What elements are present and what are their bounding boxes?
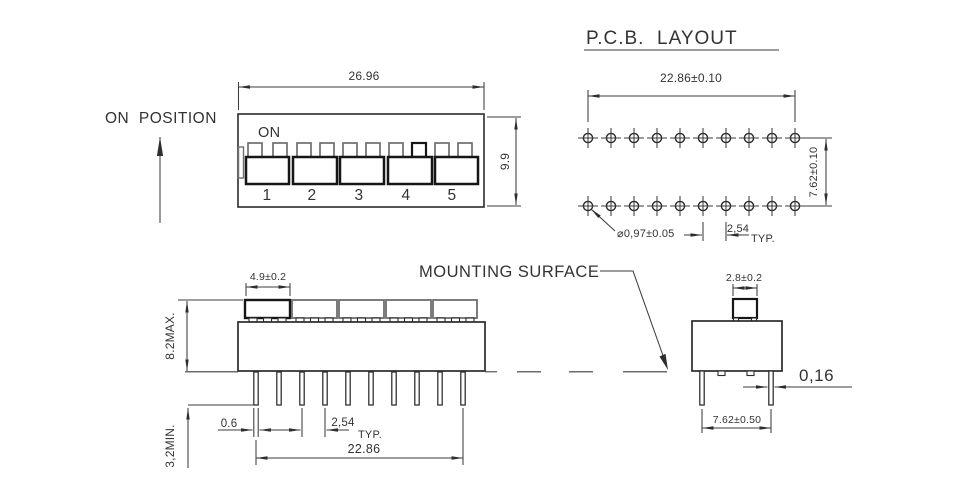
slider-cap (292, 300, 337, 318)
pin (392, 372, 396, 405)
pcb-hole (670, 128, 690, 148)
seated-height-value: 8.2MAX. (163, 312, 177, 359)
side-view: 4.9±0.2 8.2MAX. 3,2MIN. (163, 271, 667, 468)
switch-number: 5 (447, 187, 456, 204)
pin (415, 372, 419, 405)
pin (700, 371, 704, 405)
mounting-surface-label: MOUNTING SURFACE (419, 263, 599, 281)
pin-width-value: 0.6 (221, 418, 238, 430)
pcb-layout-title: P.C.B. LAYOUT (586, 28, 738, 49)
pcb-hole (762, 128, 782, 148)
pin-row-spacing-value: 7.62±0.50 (713, 414, 761, 426)
side-notch (239, 147, 244, 178)
top-view: ON POSITION 26.96 ON 1 2 3 4 5 9.9 (105, 69, 521, 223)
hole-span-value: 22.86±0.10 (660, 71, 722, 85)
dim-overall-width: 26.96 (239, 69, 485, 110)
pin (300, 372, 304, 405)
pin-length-value: 3,2MIN. (163, 424, 177, 467)
slider-cap (433, 300, 477, 318)
pin (438, 372, 442, 405)
contact-window (273, 143, 287, 157)
slider-cap (339, 300, 384, 318)
hole-pitch-value: 2,54 (727, 223, 749, 235)
pcb-hole-pattern (578, 128, 805, 216)
contact-window (343, 143, 357, 157)
slider-cap-end (733, 299, 757, 318)
contact-window (458, 143, 472, 157)
dip-switch-drawing: ON POSITION 26.96 ON 1 2 3 4 5 9.9 P.C. (0, 0, 960, 488)
pin-span-value: 22.86 (348, 442, 381, 456)
pcb-layout-view: P.C.B. LAYOUT 22.86±0.10 7.62±0.10 ⌀0,97… (578, 28, 832, 245)
contact-window (389, 143, 403, 157)
switch-slider (435, 157, 478, 184)
slider-cap (245, 300, 290, 318)
pin (769, 371, 773, 405)
pin (254, 372, 258, 405)
dim-overall-depth: 9.9 (487, 117, 521, 206)
dim-pin-pitch: 2,54 TYP. (261, 408, 382, 441)
dim-end-actuator-width: 2.8±0.2 (726, 272, 762, 296)
dim-pin-width: 0.6 (218, 408, 298, 437)
row-spacing-value: 7.62±0.10 (808, 147, 820, 198)
pcb-hole (647, 196, 667, 216)
dim-actuator-width: 4.9±0.2 (246, 271, 290, 296)
pcb-hole (739, 128, 759, 148)
pcb-hole (716, 128, 736, 148)
pcb-hole (601, 128, 621, 148)
pin (369, 372, 373, 405)
pcb-hole (624, 196, 644, 216)
actuator-width-value: 4.9±0.2 (250, 271, 286, 283)
slider-cap (386, 300, 431, 318)
dim-hole-pitch: 2,54 TYP. (684, 222, 775, 245)
pcb-hole (693, 128, 713, 148)
switch-slider (293, 157, 337, 184)
on-marking: ON (258, 125, 281, 141)
on-position-label: ON POSITION (105, 110, 217, 127)
dim-pin-length: 3,2MIN. (163, 408, 188, 468)
bottom-standoff (718, 371, 725, 376)
contact-window (412, 143, 426, 157)
pin-thickness-value: 0,16 (799, 366, 834, 385)
pcb-hole (601, 196, 621, 216)
switch-slider (340, 157, 384, 184)
pcb-hole (647, 128, 667, 148)
pcb-hole (693, 196, 713, 216)
pin-pitch-value: 2,54 (331, 417, 355, 429)
actuator-width-value: 2.8±0.2 (726, 272, 762, 284)
dim-row-spacing: 7.62±0.10 (801, 138, 832, 206)
through-hole-pins (254, 372, 465, 405)
pin (461, 372, 465, 405)
pitch-qualifier: TYP. (358, 429, 382, 441)
contact-window (435, 143, 449, 157)
contact-window (297, 143, 311, 157)
pin (323, 372, 327, 405)
technical-drawing-page: ON POSITION 26.96 ON 1 2 3 4 5 9.9 P.C. (0, 0, 960, 488)
switch-number: 2 (307, 187, 316, 204)
pcb-hole (624, 128, 644, 148)
switch-number: 1 (262, 187, 271, 204)
leader-line (600, 271, 666, 364)
switch-body-end (692, 321, 782, 371)
bottom-standoff (747, 371, 754, 376)
switch-number: 3 (354, 187, 363, 204)
switch-number: 4 (401, 187, 410, 204)
hole-diameter-callout: ⌀0,97±0.05 (591, 209, 674, 240)
pcb-hole (762, 196, 782, 216)
slider-caps (245, 300, 477, 322)
dim-pin-row-spacing: 7.62±0.50 (702, 409, 771, 433)
dim-seated-height: 8.2MAX. (163, 301, 187, 371)
hole-diameter-value: ⌀0,97±0.05 (617, 228, 674, 240)
overall-depth-value: 9.9 (498, 153, 512, 170)
pcb-hole (578, 128, 598, 148)
overall-width-value: 26.96 (348, 69, 379, 83)
pitch-qualifier: TYP. (751, 233, 775, 245)
switch-slider (246, 157, 289, 184)
leader-arrow-icon (660, 354, 669, 370)
dim-hole-span: 22.86±0.10 (588, 71, 795, 122)
pcb-hole (670, 196, 690, 216)
switch-slider (388, 157, 432, 184)
contact-window (320, 143, 334, 157)
switch-body-side (238, 322, 485, 371)
contact-window (366, 143, 380, 157)
pcb-hole (739, 196, 759, 216)
pin (346, 372, 350, 405)
pcb-hole (716, 196, 736, 216)
switch-sliders (246, 157, 478, 184)
contact-window (248, 143, 262, 157)
pin (277, 372, 281, 405)
